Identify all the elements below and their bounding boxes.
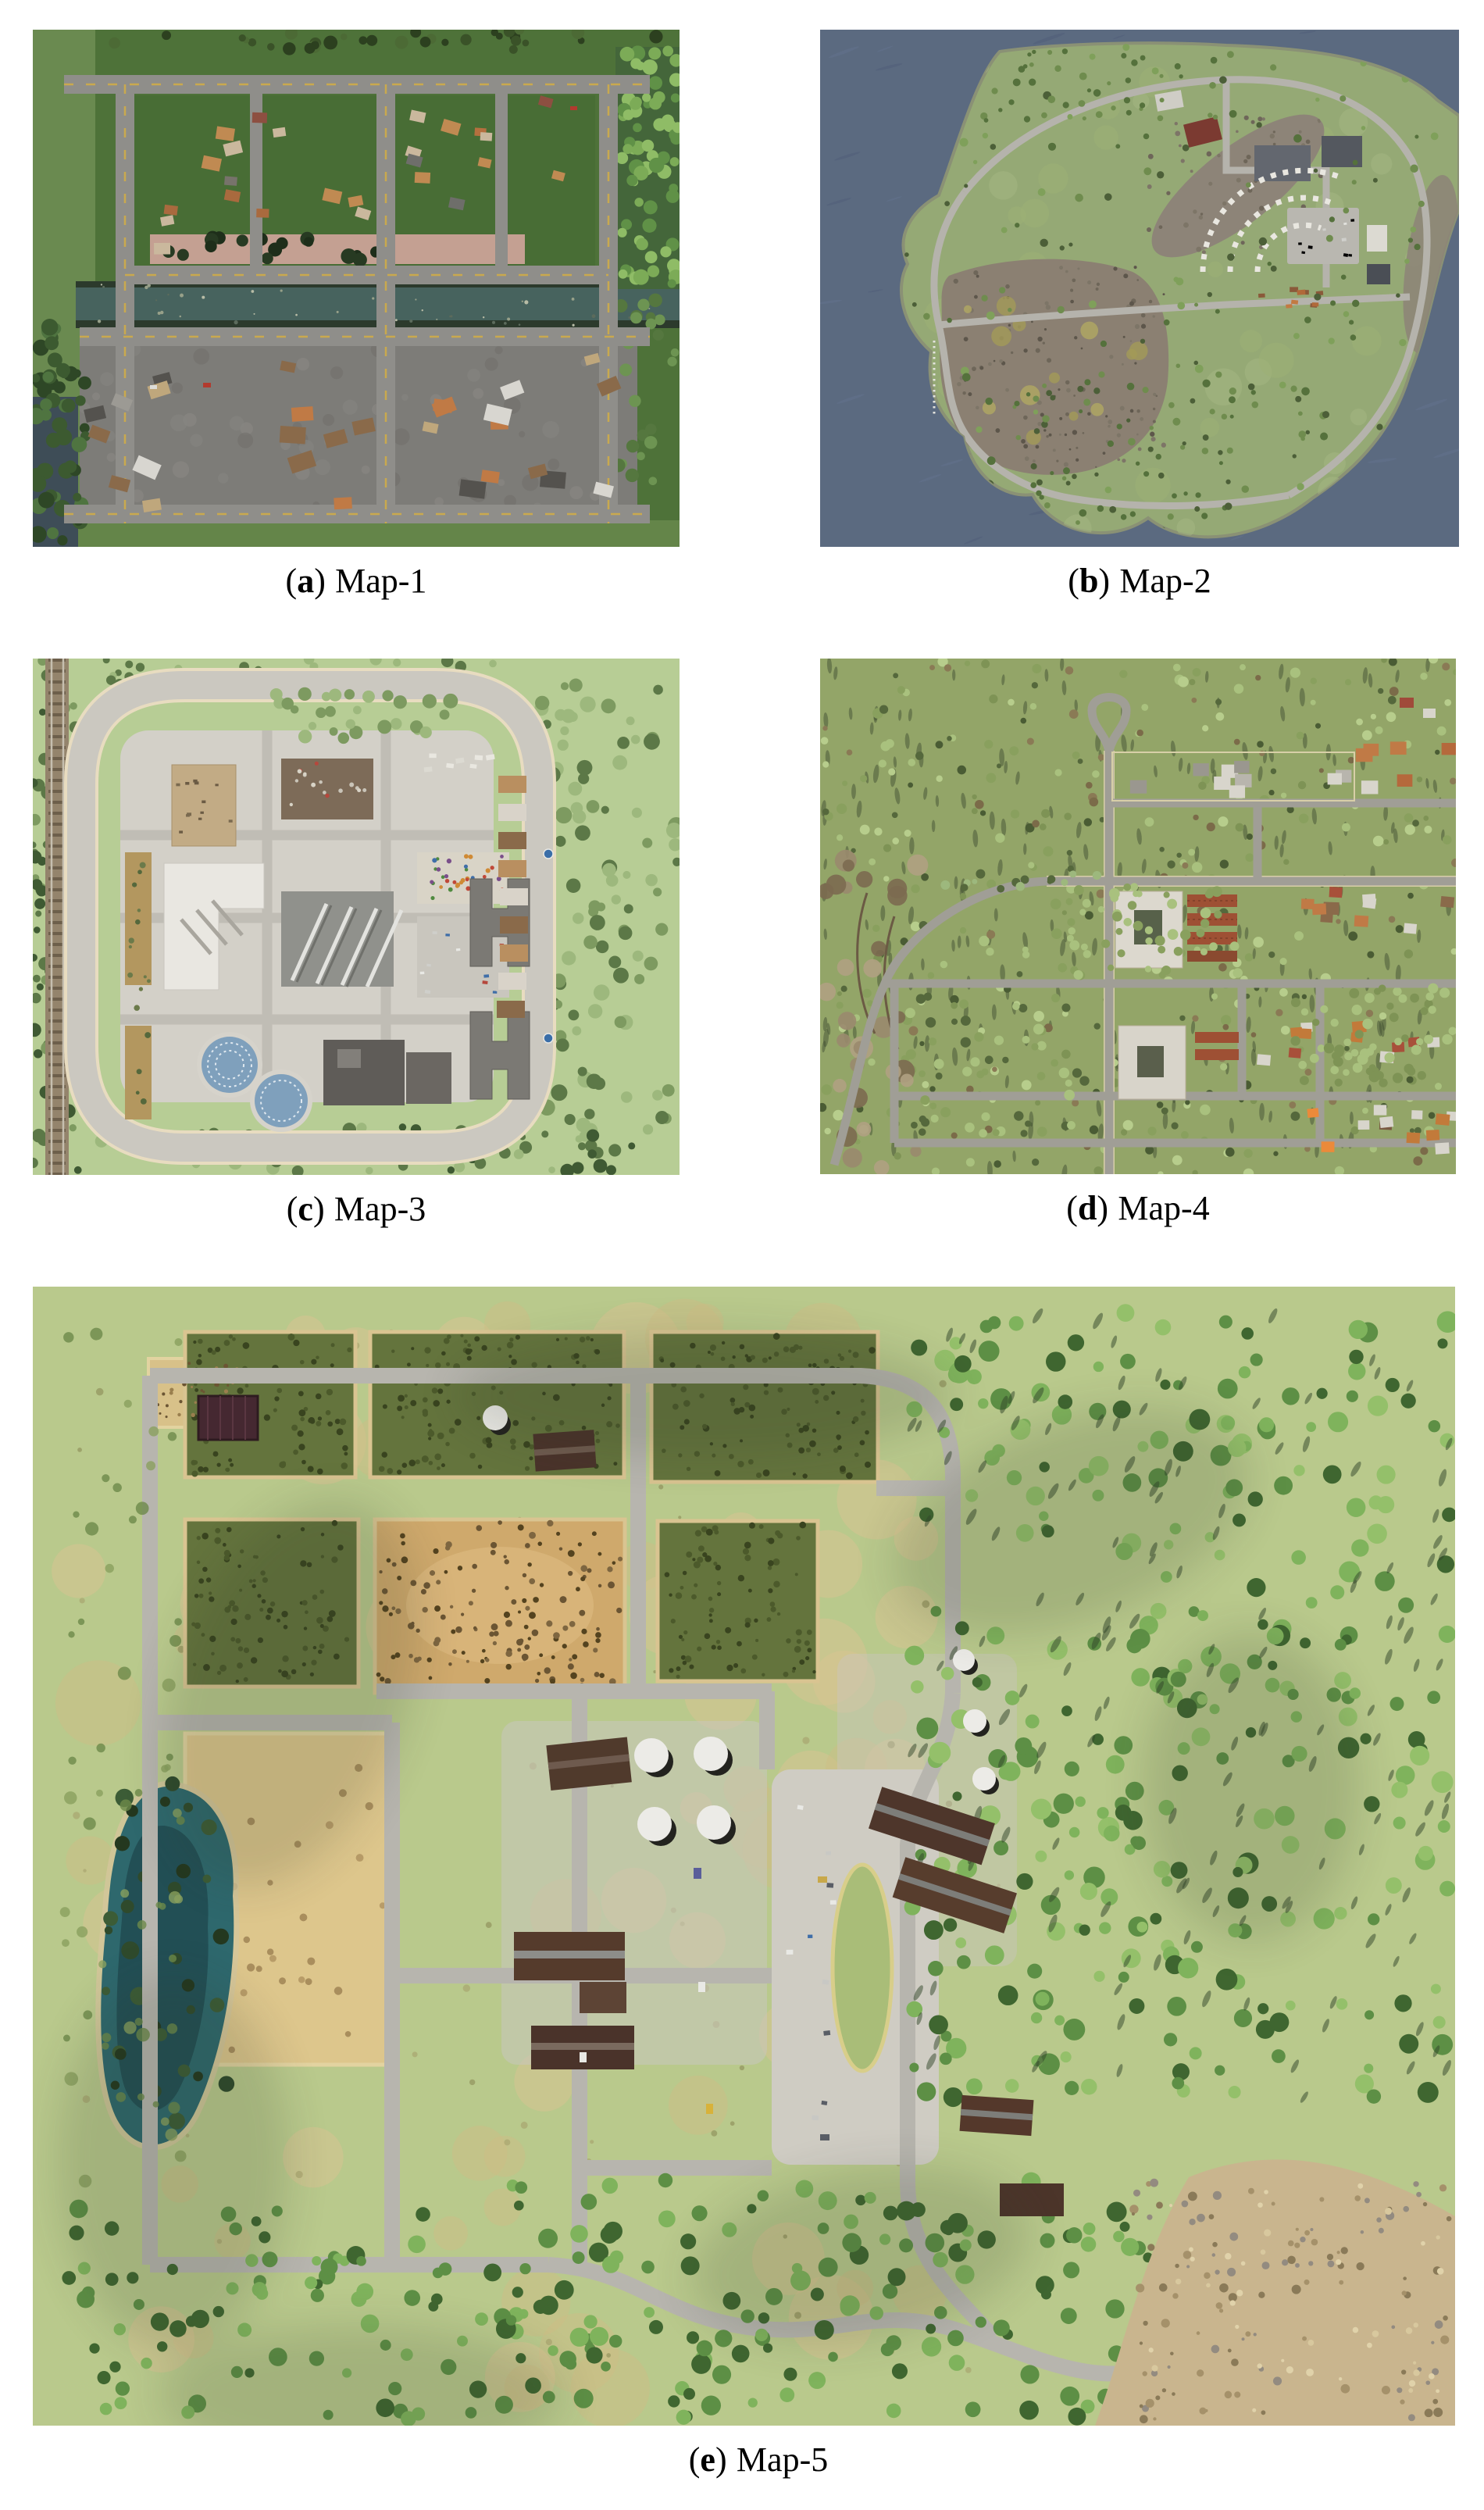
caption-map-2: (b)Map-2 — [820, 558, 1459, 605]
figure-panel-e: (e)Map-5 — [33, 1287, 1484, 2483]
caption-map-1: (a)Map-1 — [33, 558, 680, 605]
figure-panel-d: (d)Map-4 — [820, 659, 1456, 1286]
caption-map-4: (d)Map-4 — [820, 1185, 1456, 1232]
figure-panel-a: (a)Map-1 — [33, 30, 680, 659]
map-1-aerial — [33, 30, 680, 547]
map-5-aerial — [33, 1287, 1455, 2426]
figure-panel-c: (c)Map-3 — [33, 659, 680, 1287]
figure-panel-b: (b)Map-2 — [820, 30, 1459, 659]
caption-map-3: (c)Map-3 — [33, 1186, 680, 1233]
map-4-aerial — [820, 659, 1456, 1174]
map3-tank — [202, 1037, 258, 1093]
map5-container — [198, 1396, 258, 1440]
map5-oval-island — [833, 1865, 892, 2071]
map3-building-tan — [172, 765, 236, 846]
map3-townhouses — [497, 776, 528, 1018]
map-1-image — [33, 30, 680, 547]
map-3-image — [33, 659, 680, 1175]
map3-market-stalls — [417, 852, 509, 904]
map-2-image — [820, 30, 1459, 547]
map2-parking — [1287, 208, 1359, 264]
map-5-image — [33, 1287, 1455, 2426]
map-2-aerial — [820, 30, 1459, 547]
caption-map-5: (e)Map-5 — [33, 2437, 1484, 2483]
map-3-aerial — [33, 659, 680, 1175]
figure-maps: (a)Map-1 — [0, 0, 1484, 2508]
map-4-image — [820, 659, 1456, 1174]
map2-building — [1254, 145, 1311, 181]
